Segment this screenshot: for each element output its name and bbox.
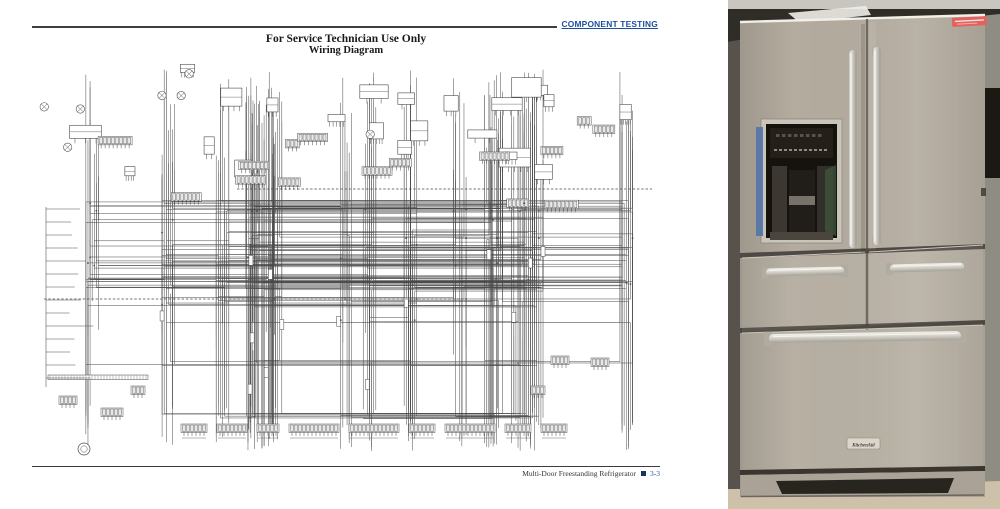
footer-rule (32, 466, 660, 467)
right-door-handle (872, 47, 882, 245)
water-ice-dispenser (756, 119, 842, 243)
diagram-title: For Service Technician Use Only Wiring D… (32, 33, 660, 56)
screenshot-root: COMPONENT TESTING For Service Technician… (0, 0, 1000, 509)
dispenser-display (770, 128, 833, 158)
footer-page-number: 3-3 (650, 469, 660, 478)
carafe-band (789, 196, 815, 205)
kick-plate (741, 471, 984, 497)
green-reflection (825, 165, 836, 236)
header-rule (32, 26, 557, 28)
refrigerator-photo: KitchenAid (728, 0, 1000, 509)
blue-tape-strip (756, 127, 763, 236)
model-sticker (952, 16, 987, 27)
wiring-diagram (32, 57, 662, 461)
header-section-label: COMPONENT TESTING (562, 19, 658, 29)
manual-page: COMPONENT TESTING For Service Technician… (0, 0, 728, 509)
left-drawer-face (742, 252, 865, 332)
background-dark-object (985, 88, 1000, 178)
fridge-side-shadow (728, 40, 740, 489)
left-door-edge-shadow (861, 24, 865, 253)
page-header: COMPONENT TESTING (32, 19, 658, 29)
dispenser-left-canister (772, 166, 787, 234)
drip-tray (770, 232, 833, 240)
footer-doc-title: Multi-Door Freestanding Refrigerator (522, 469, 636, 478)
brand-badge: KitchenAid (847, 438, 880, 449)
page-footer: Multi-Door Freestanding Refrigerator 3-3 (522, 469, 660, 478)
door-hinge (981, 188, 986, 196)
title-line-1: For Service Technician Use Only (32, 33, 660, 45)
display-bright-glyphs (774, 149, 827, 151)
title-line-2: Wiring Diagram (32, 45, 660, 56)
footer-square-bullet (641, 471, 646, 476)
right-drawer-face (869, 245, 983, 326)
left-door-handle (848, 50, 858, 248)
refrigerator-photo-pane: KitchenAid (728, 0, 1000, 509)
carafe-lid (791, 163, 813, 171)
badge-text: KitchenAid (851, 444, 875, 449)
